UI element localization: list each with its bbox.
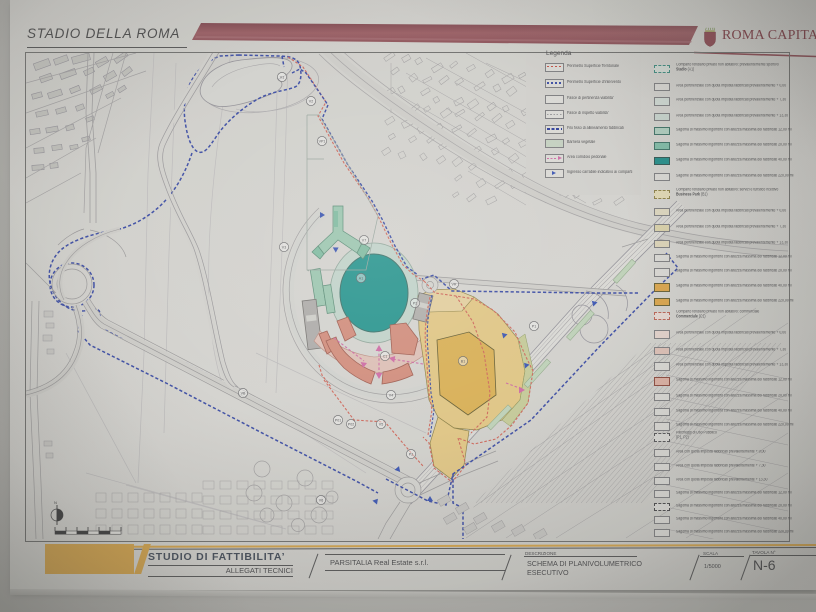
svg-text:P01: P01: [335, 418, 341, 422]
svg-text:P1: P1: [532, 324, 536, 328]
svg-text:V4: V4: [389, 393, 393, 397]
svg-text:B1: B1: [461, 359, 465, 363]
svg-text:V1: V1: [280, 75, 284, 79]
svg-text:VP1: VP1: [319, 139, 326, 143]
svg-text:V7: V7: [362, 238, 366, 242]
svg-text:V5: V5: [379, 422, 383, 426]
svg-text:VR: VR: [452, 282, 457, 286]
svg-text:V6: V6: [319, 498, 323, 502]
svg-text:P2: P2: [413, 301, 417, 305]
svg-text:P2: P2: [409, 452, 413, 456]
svg-text:A1: A1: [359, 276, 363, 280]
svg-text:VB: VB: [241, 391, 246, 395]
svg-text:N: N: [54, 500, 57, 505]
svg-text:P02: P02: [348, 422, 354, 426]
svg-text:V2: V2: [309, 99, 313, 103]
svg-text:C1: C1: [383, 354, 388, 358]
svg-text:V3: V3: [282, 245, 286, 249]
